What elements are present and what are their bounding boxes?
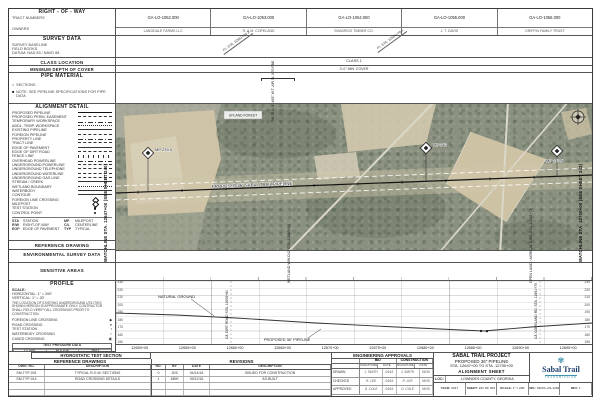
- field-label: DWG:: [529, 387, 536, 391]
- class-note: CLASS 1: [116, 58, 592, 65]
- field-label: SHEET:: [467, 387, 478, 391]
- abbreviations: STA STATION MP MILEPOST R/W RIGHT-OF-WAY…: [12, 217, 112, 231]
- tract-number: GA-LO-1053.000: [211, 9, 305, 27]
- pipe-spec-note: 36" O.D. x .465" W.T. API 5L X70 FBE: [271, 61, 275, 122]
- reference-drawing-title: REFERENCE DRAWING: [12, 243, 112, 248]
- milepost-label-3: MP 240.5: [546, 158, 564, 163]
- environmental-note: WETLAND WW-D42 STA. 12665+10: [287, 224, 291, 283]
- tract-owner: GRIFFIN FAMILY TRUST: [498, 27, 592, 35]
- elevation-label: 200: [118, 304, 124, 308]
- field-value: 241 OF 363: [479, 387, 495, 391]
- title-fields: YEAR: 2017 SHEET: 241 OF 363 SCALE: 1" =…: [434, 383, 592, 395]
- legend-linestyle-sample: [78, 122, 112, 123]
- environmental-title: ENVIRONMENTAL SURVEY DATA: [12, 252, 112, 257]
- tract-owner: R. & M. COPELAND: [211, 27, 305, 35]
- elevation-labels-right: 230220210200190180170160150: [574, 281, 590, 345]
- approvals-rows: DRAWN J. SMITH 04/16 J. SMITH 09/16 CHEC…: [332, 369, 433, 395]
- right-of-way-line: OWNERS: [12, 27, 112, 31]
- tract-strip: GA-LO-1052.000 LANGDALE FARMS LLC GA-LO-…: [116, 9, 592, 36]
- milepost-diamond-3: [551, 145, 562, 156]
- elevation-label: 190: [584, 311, 590, 315]
- reference-row: [9, 390, 151, 397]
- right-of-way-lines: TRACT NUMBERSOWNERS: [12, 16, 112, 32]
- tract-number: GA-LO-1056.000: [498, 9, 592, 27]
- test-pressure-table: TEST PRESSURE DATA CLASSM.A.O.P.TEST 1 1…: [12, 343, 112, 352]
- station-label: 12670+00: [322, 346, 339, 350]
- station-label: 12665+00: [274, 346, 291, 350]
- elevation-label: 230: [584, 281, 590, 285]
- section-right-of-way: RIGHT - OF - WAY TRACT NUMBERSOWNERS: [9, 9, 116, 36]
- tract-owner: SHADRICK TIMBER CO.: [307, 27, 401, 35]
- station-label: 12655+00: [179, 346, 196, 350]
- title-field: DWG: SM-PL-AS-12647: [529, 383, 561, 395]
- tract-number: GA-LO-1052.000: [116, 9, 210, 27]
- legend-linestyle-sample: [78, 116, 112, 119]
- pipe-material-strip: [116, 73, 592, 104]
- matchline-left: MATCHLINE STA. 12647+00 (SEE SHEET 240): [104, 164, 109, 262]
- elevation-label: 210: [118, 296, 124, 300]
- signature-cell: J. SMITH: [397, 369, 420, 377]
- legend-linestyle-sample: [78, 112, 112, 115]
- section-alignment-detail: ALIGNMENT DETAIL PROPOSED PIPELINE PROPO…: [9, 104, 116, 241]
- approvals-subheaders: SIGNATUREDATESIGNATUREDATE: [360, 364, 433, 368]
- legend-row: CONTROL POINT: [12, 211, 112, 215]
- environmental-strip: [116, 251, 592, 263]
- signature-cell: D. COLE: [360, 386, 383, 394]
- elevation-label: 180: [118, 319, 124, 323]
- pipe-material-title: PIPE MATERIAL: [12, 74, 112, 80]
- reference-drawings-table: REFERENCE DRAWINGS DWG. NO. DESCRIPTION …: [9, 359, 151, 396]
- title-field: SCALE: 1" = 200': [497, 383, 529, 395]
- sensitive-note: OPEN LAND / AGRICULTURE STA. 12691+75: [529, 208, 533, 283]
- legend-linestyle-sample: [78, 142, 112, 145]
- logo-subtitle: TRANSMISSION: [545, 375, 577, 380]
- revisions-table: REVISIONS NO. BY DATE DESCRIPTION 0 JDS …: [151, 359, 331, 396]
- abbreviation-value: EDGE OF PAVEMENT: [23, 227, 59, 231]
- approvals-subheader: DATE: [415, 364, 433, 368]
- title-field: YEAR: 2017: [434, 383, 466, 395]
- abbreviation-key: TYP: [64, 227, 73, 231]
- alignment-legend: PROPOSED PIPELINE PROPOSED PERM. EASEMEN…: [12, 111, 112, 215]
- station-label: 12675+00: [369, 346, 386, 350]
- aerial-map: MP 239.5 MP 240 MP 240.5 PROPOSED 36" SA…: [116, 104, 592, 251]
- signature-cell: D. COLE: [397, 386, 420, 394]
- pipe-material-item: ○ SECTIONS: [12, 83, 112, 87]
- logo-name: Sabal Trail: [542, 365, 580, 374]
- station-label: 12695+00: [560, 346, 577, 350]
- tract-number: GA-LO-1055.000: [402, 9, 496, 27]
- station-label: 12690+00: [512, 346, 529, 350]
- profile-scale-vertical: VERTICAL: 1" = 20': [12, 296, 112, 300]
- section-reference-drawing: REFERENCE DRAWING: [9, 241, 116, 250]
- tract-cell: GA-LO-1055.000 J. T. DAVIS: [402, 9, 497, 35]
- elevation-label: 190: [118, 311, 124, 315]
- field-label: YEAR:: [441, 387, 451, 391]
- legend-linestyle-sample: [78, 125, 112, 128]
- natural-ground-label: NATURAL GROUND: [158, 294, 195, 299]
- survey-data-lines: SURVEY BASELINEFIELD BOOKSDATUM: NAD 83 …: [12, 43, 112, 56]
- section-pipe-material: PIPE MATERIAL ○ SECTIONS ■ NOTE: SEE PIP…: [9, 73, 116, 104]
- cover-strip: 3'-0" MIN. COVER: [116, 66, 592, 73]
- tract-owner: LANGDALE FARMS LLC: [116, 27, 210, 35]
- station-axis: 12650+0012655+0012660+0012665+0012670+00…: [116, 345, 592, 353]
- signature-cell: R. LEE: [397, 378, 420, 386]
- reference-rows: SM-TYP-001 TYPICAL R.O.W. SECTIONS SM-TY…: [9, 370, 151, 396]
- field-value: 1" = 200': [513, 387, 525, 391]
- section-class-location: CLASS LOCATION: [9, 58, 116, 66]
- signature-cell: J. SMITH: [360, 369, 383, 377]
- milepost-label-1: MP 239.5: [155, 147, 173, 152]
- station-label: 12650+00: [131, 346, 148, 350]
- class-location-strip: CLASS 1: [116, 58, 592, 66]
- sensitive-areas-strip: [116, 263, 592, 281]
- profile-graphics: NATURAL GROUND PROPOSED 36" PIPELINE C/L…: [116, 281, 592, 345]
- abbreviation-key: EOP: [12, 227, 21, 231]
- section-min-depth: MINIMUM DEPTH OF COVER: [9, 66, 116, 73]
- pipe-material-symbol: ■: [12, 90, 14, 99]
- company-logo: ✾ Sabal Trail TRANSMISSION: [530, 353, 592, 382]
- sensitive-areas-title: SENSITIVE AREAS: [12, 268, 112, 273]
- legend-linestyle-sample: [78, 129, 112, 132]
- section-survey-data: SURVEY DATA SURVEY BASELINEFIELD BOOKSDA…: [9, 36, 116, 58]
- legend-linestyle-sample: [78, 155, 112, 158]
- approvals-subheader: SIGNATURE: [360, 364, 378, 368]
- section-environmental: ENVIRONMENTAL SURVEY DATA: [9, 250, 116, 263]
- elevation-label: 220: [118, 289, 124, 293]
- survey-strip: P.I. STA. 12661+24.3 P.I. STA. 12684+70.…: [116, 36, 592, 58]
- right-of-way-line: TRACT NUMBERS: [12, 16, 112, 20]
- profile-legend: FOREIGN LINE CROSSING ◆ ROAD CROSSING ● …: [12, 318, 112, 341]
- abbreviation-value: TYPICAL: [75, 227, 90, 231]
- hydrostatic-header: HYDROSTATIC TEST SECTION: [31, 352, 151, 359]
- alignment-sheet: RIGHT - OF - WAY TRACT NUMBERSOWNERS SUR…: [8, 8, 593, 397]
- elevation-label: 150: [584, 341, 590, 345]
- profile-note: THE LOCATION OF EXISTING UNDERGROUND UTI…: [12, 302, 112, 317]
- field-value: SM-PL-AS-12647: [537, 387, 561, 391]
- field-label: REV:: [571, 387, 578, 391]
- loc-label: LOC:: [434, 376, 446, 383]
- min-depth-title: MINIMUM DEPTH OF COVER: [12, 68, 112, 73]
- title-field: REV: 1: [560, 383, 592, 395]
- sheet-type: ALIGNMENT SHEET: [458, 369, 504, 374]
- profile-legend-label: CASED CROSSING: [12, 337, 45, 342]
- elevation-label: 220: [584, 289, 590, 293]
- field-value: 2017: [451, 387, 458, 391]
- tract-number: GA-LO-1054.000: [307, 9, 401, 27]
- legend-linestyle-sample: [78, 134, 112, 137]
- legend-linestyle-sample: [78, 147, 112, 150]
- pipe-material-symbol: ○: [12, 83, 14, 87]
- milepost-label-2: MP 240: [433, 142, 447, 147]
- class-location-title: CLASS LOCATION: [12, 60, 112, 65]
- tract-cell: GA-LO-1052.000 LANGDALE FARMS LLC: [116, 9, 211, 35]
- approvals-row: DRAWN J. SMITH 04/16 J. SMITH 09/16: [332, 369, 433, 378]
- survey-data-line: DATUM: NAD 83 / NAVD 88: [12, 51, 112, 55]
- legend-label: CONTROL POINT: [12, 211, 78, 215]
- pipe-material-label: NOTE: SEE PIPELINE SPECIFICATIONS FOR PI…: [16, 90, 112, 99]
- approvals-row: APPROVED D. COLE 04/16 D. COLE 09/16: [332, 386, 433, 395]
- pipe-material-label: SECTIONS: [16, 83, 35, 87]
- revision-row: [152, 390, 331, 397]
- section-sensitive-areas: SENSITIVE AREAS: [9, 263, 116, 281]
- elevation-label: 160: [118, 334, 124, 338]
- profile-legend-symbol: ▣: [109, 337, 112, 342]
- profile-legend-row: CASED CROSSING ▣: [12, 337, 112, 342]
- profile-pipe-label: PROPOSED 36" PIPELINE: [264, 338, 311, 342]
- ground-profile-line: [116, 313, 592, 331]
- crossing-dot: [480, 330, 482, 332]
- map-graphics: MP 239.5 MP 240 MP 240.5 PROPOSED 36" SA…: [116, 104, 592, 251]
- tract-owner: J. T. DAVIS: [402, 27, 496, 35]
- crossing-dot: [486, 330, 488, 332]
- field-bottom-left: [116, 212, 206, 251]
- tract-cells: GA-LO-1052.000 LANGDALE FARMS LLC GA-LO-…: [116, 9, 592, 35]
- pipe-material-item: ■ NOTE: SEE PIPELINE SPECIFICATIONS FOR …: [12, 90, 112, 99]
- profile-crossing-left: C/L DIRT ROAD STA. 12659+80: [225, 290, 229, 339]
- field-top-middle: [341, 104, 436, 152]
- legend-linestyle-sample: [78, 161, 112, 162]
- elevation-label: 200: [584, 304, 590, 308]
- profile-crossing-right: C/L COPELAND RD. STA. 12691+75: [534, 283, 538, 339]
- title-block: SABAL TRAIL PROJECT PROPOSED 36" PIPELIN…: [433, 353, 592, 396]
- elevation-label: 170: [584, 326, 590, 330]
- station-label: 12660+00: [226, 346, 243, 350]
- elevation-label: 160: [584, 334, 590, 338]
- elevation-label: 210: [584, 296, 590, 300]
- field-value: 1: [579, 387, 581, 391]
- legend-linestyle-sample: [78, 151, 112, 154]
- loc-value: LOWNDES COUNTY, GEORGIA: [446, 377, 529, 381]
- station-label: 12680+00: [417, 346, 434, 350]
- elevation-labels-left: 230220210200190180170160150: [118, 281, 124, 345]
- field-label: SCALE:: [500, 387, 512, 391]
- tract-cell: GA-LO-1054.000 SHADRICK TIMBER CO.: [307, 9, 402, 35]
- section-profile: PROFILE SCALE: HORIZONTAL: 1" = 200' VER…: [9, 281, 116, 352]
- legend-linestyle-sample: [78, 139, 112, 140]
- elevation-label: 230: [118, 281, 124, 285]
- approvals-row: CHECKED R. LEE 04/16 R. LEE 09/16: [332, 378, 433, 387]
- area-label: UPLAND FOREST: [229, 113, 257, 117]
- elevation-label: 180: [584, 319, 590, 323]
- pipe-material-items: ○ SECTIONS ■ NOTE: SEE PIPELINE SPECIFIC…: [12, 83, 112, 99]
- profile-grid: NATURAL GROUND PROPOSED 36" PIPELINE C/L…: [116, 281, 592, 345]
- station-label: 12685+00: [464, 346, 481, 350]
- cover-note: 3'-0" MIN. COVER: [116, 66, 592, 72]
- approvals-subheader: DATE: [378, 364, 396, 368]
- signature-cell: R. LEE: [360, 378, 383, 386]
- revision-rows: 0 JDS 04/14/16 ISSUED FOR CONSTRUCTION 1…: [152, 370, 331, 396]
- abbreviation-row: EOP EDGE OF PAVEMENT: [12, 227, 60, 231]
- elevation-label: 170: [118, 326, 124, 330]
- title-field: SHEET: 241 OF 363: [466, 383, 498, 395]
- pipe-dimension-bracket: [261, 78, 295, 81]
- approvals-table: ENGINEERING APPROVALS BIDCONSTRUCTION SI…: [331, 353, 433, 396]
- elevation-label: 150: [118, 341, 124, 345]
- tract-cell: GA-LO-1056.000 GRIFFIN FAMILY TRUST: [498, 9, 592, 35]
- logo-flower-icon: ✾: [558, 356, 565, 365]
- approvals-subheader: SIGNATURE: [397, 364, 415, 368]
- matchline-right: MATCHLINE STA. 12700+00 (SEE SHEET 242): [579, 164, 584, 262]
- tract-cell: GA-LO-1053.000 R. & M. COPELAND: [211, 9, 306, 35]
